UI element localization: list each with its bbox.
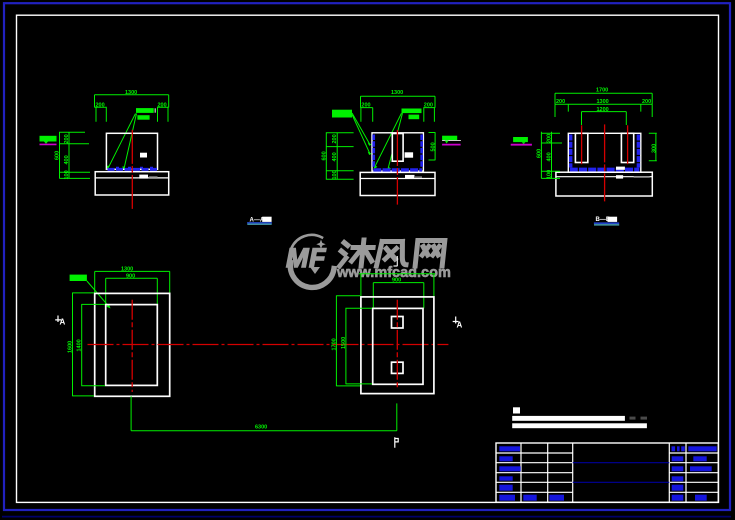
svg-text:200: 200 [332, 134, 338, 143]
svg-text:200: 200 [556, 99, 565, 105]
svg-text:200: 200 [424, 102, 433, 108]
svg-text:100: 100 [332, 170, 338, 179]
svg-text:1600: 1600 [68, 341, 74, 353]
svg-text:200: 200 [642, 99, 651, 105]
svg-text:900: 900 [392, 278, 401, 284]
svg-text:A: A [60, 318, 66, 327]
svg-text:1700: 1700 [596, 88, 608, 94]
svg-text:900: 900 [126, 273, 135, 279]
svg-text:1400: 1400 [77, 339, 83, 351]
svg-text:400: 400 [547, 152, 553, 161]
svg-text:6300: 6300 [255, 424, 267, 430]
svg-text:200: 200 [547, 134, 553, 143]
svg-text:1500: 1500 [341, 337, 347, 349]
svg-text:1300: 1300 [597, 99, 609, 105]
svg-text:200: 200 [64, 134, 70, 143]
svg-text:200: 200 [361, 103, 370, 109]
svg-text:1300: 1300 [125, 90, 137, 96]
svg-text:100: 100 [64, 170, 70, 179]
svg-text:1300: 1300 [121, 266, 133, 272]
svg-text:1200: 1200 [597, 107, 609, 113]
svg-text:100: 100 [547, 170, 553, 179]
svg-text:300: 300 [651, 144, 657, 153]
svg-text:400: 400 [332, 152, 338, 161]
svg-text:MF: MF [286, 243, 327, 273]
svg-text:500: 500 [431, 142, 437, 151]
svg-text:200: 200 [96, 102, 105, 108]
svg-text:A: A [457, 321, 463, 330]
svg-text:600: 600 [536, 149, 542, 158]
svg-text:600: 600 [321, 151, 327, 160]
svg-text:400: 400 [64, 155, 70, 164]
svg-text:200: 200 [158, 102, 167, 108]
svg-text:1700: 1700 [331, 338, 337, 350]
svg-text:1300: 1300 [391, 90, 403, 96]
svg-text:600: 600 [55, 151, 61, 160]
